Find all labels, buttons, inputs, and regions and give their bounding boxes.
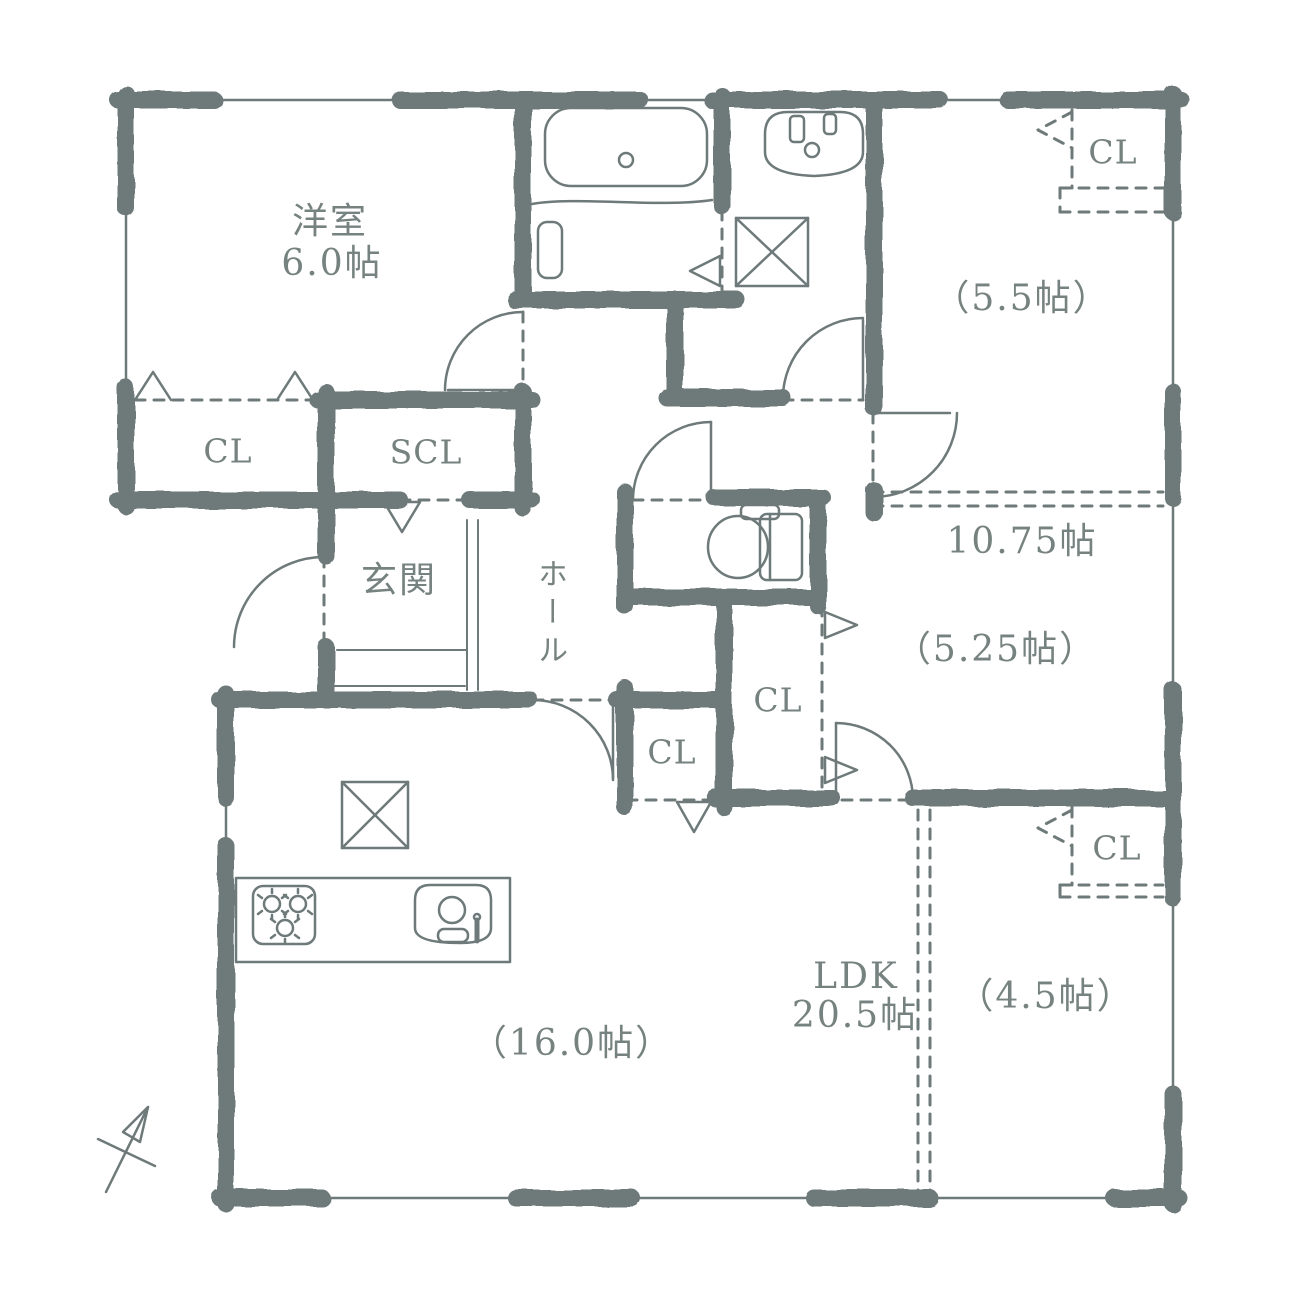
kitchen-sink-icon: [415, 885, 491, 943]
kitchen-counter: [236, 878, 510, 962]
cl-door-mark: [677, 802, 711, 832]
closet-door-mark: [277, 372, 313, 400]
label-entrance: 玄関: [361, 563, 437, 599]
label-room-5-25: （5.25帖）: [895, 632, 1097, 668]
bath-fold-door-mark: [690, 256, 720, 286]
label-bedroom-size: 6.0帖: [281, 246, 382, 282]
label-hall: ホール: [534, 558, 564, 672]
toilet-door-arc: [633, 422, 711, 500]
washroom-door-arc: [783, 318, 863, 398]
ldk-door-arc: [533, 700, 613, 780]
cl-door-mark: [825, 612, 857, 638]
washing-machine-pan-icon: [736, 218, 808, 286]
label-room-5-5: （5.5帖）: [933, 281, 1110, 317]
label-closet-hall: CL: [647, 736, 696, 769]
appliance-space-icon: [342, 782, 408, 848]
doors-layer: [135, 256, 957, 832]
label-closet-top-right: CL: [1088, 136, 1137, 169]
label-closet-bottom-right: CL: [1092, 832, 1141, 865]
bedroom-door-arc: [445, 312, 523, 390]
cl-door-mark: [825, 757, 857, 783]
north-arrow-icon: [98, 1107, 155, 1192]
floor-plan-drawing: [0, 0, 1300, 1300]
closet-door-mark: [135, 372, 171, 400]
label-room-10-75: 10.75帖: [946, 524, 1097, 560]
label-room-4-5: （4.5帖）: [957, 979, 1134, 1015]
label-closet-west: CL: [203, 435, 252, 468]
entrance-door-arc: [234, 557, 324, 647]
label-closet-center: CL: [753, 684, 802, 717]
washbasin-icon: [765, 112, 863, 176]
label-ldk-name: LDK: [813, 959, 899, 995]
label-ldk-size: 20.5帖: [792, 998, 918, 1034]
side-door-arc: [836, 723, 913, 800]
label-shoe-closet: SCL: [390, 436, 463, 469]
bathtub-icon: [532, 108, 712, 278]
floor-plan: 洋室 6.0帖 CL （5.5帖） CL SCL 玄関 ホール 10.75帖 （…: [0, 0, 1300, 1300]
room-door-arc: [873, 413, 957, 497]
toilet-icon: [708, 505, 802, 580]
label-room-16: （16.0帖）: [471, 1026, 673, 1062]
label-bedroom-name: 洋室: [292, 204, 368, 240]
gas-stove-icon: [253, 886, 315, 944]
